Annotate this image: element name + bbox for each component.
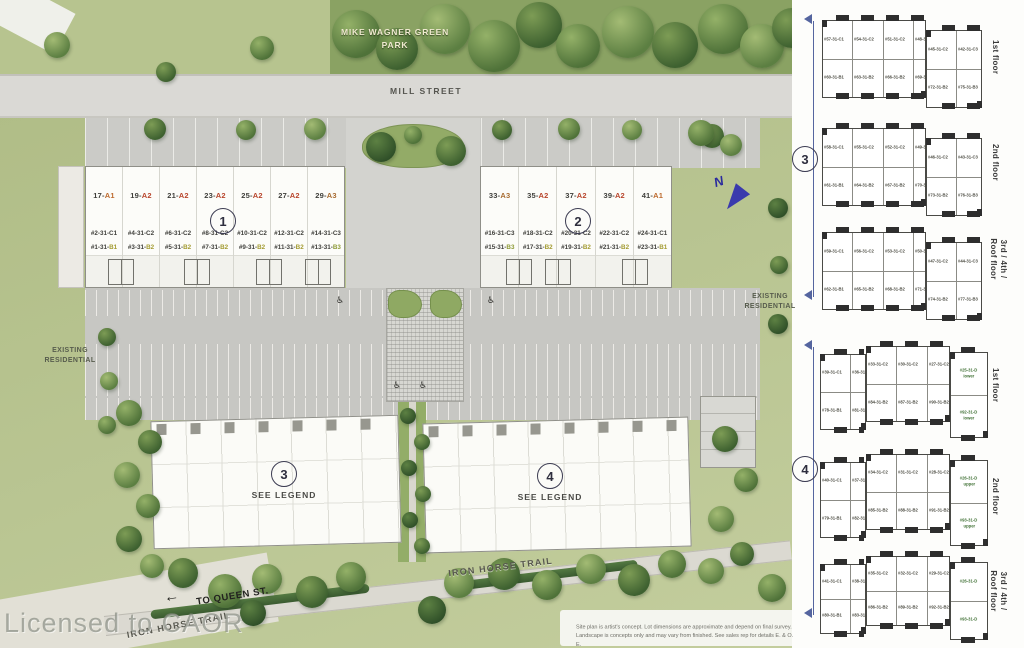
floorplan-unit: #39-31-C1 [821, 355, 850, 392]
group3-arrow-bottom-icon [799, 290, 812, 300]
floorplan-unit: #26-31-D [951, 563, 987, 601]
tree [366, 132, 396, 162]
tree [116, 400, 142, 426]
floorplan-unit: #56-31-C2 [852, 233, 882, 271]
unit-street-number: 39-A2 [596, 191, 633, 200]
unit-codes: #10-31-C2 #9-31-B2 [234, 227, 270, 255]
floorplan-unit-label: #30-31-C2 [898, 363, 918, 367]
unit-street-number: 33-A3 [481, 191, 518, 200]
tree [100, 372, 118, 390]
building3-number-badge: 3 [271, 461, 297, 487]
garage [506, 259, 532, 285]
stair-tabs [868, 449, 948, 455]
floorplan-unit: #93-31-D [951, 602, 987, 640]
tree [532, 570, 562, 600]
unit-code-lower: #21-31-B2 [596, 241, 633, 255]
floorplan-unit-label: #74-31-B2 [928, 298, 948, 302]
floorplan-unit-label: #85-31-B2 [868, 509, 888, 513]
licensed-watermark: Licensed to CAOR [4, 608, 244, 639]
floorplan-unit-label: #53-31-C2 [885, 250, 905, 254]
floorplan-unit-label: #77-31-B3 [958, 298, 978, 302]
unit-street-number: 17-A1 [86, 191, 122, 200]
floorplan-unit-label: #54-31-C2 [854, 38, 874, 42]
floorplan-unit: #52-31-C2 [883, 129, 913, 167]
floorplan-unit-label: #34-31-C2 [868, 471, 888, 475]
stair-tabs [930, 25, 980, 31]
unit-codes: #6-31-C2 #5-31-B2 [160, 227, 196, 255]
floorplan-unit-label: #31-31-C2 [898, 471, 918, 475]
unit-codes: #4-31-C2 #3-31-B2 [123, 227, 159, 255]
floorplan-unit-label: #88-31-B2 [898, 509, 918, 513]
mill-street-road [0, 74, 792, 118]
floorplan-unit-label: #42-31-C3 [958, 48, 978, 52]
floorplan-unit: #42-31-C3 [956, 31, 986, 69]
floorplan-unit-label: #93-31-D [960, 618, 978, 622]
stair-tabs [930, 133, 980, 139]
floorplan-unit-label: #75-31-B3 [958, 86, 978, 90]
unit-code-upper: #4-31-C2 [123, 227, 159, 241]
tree [136, 494, 160, 518]
tree [138, 430, 162, 454]
stair-tabs [824, 305, 924, 311]
floorplan-bldg4-floor3: #41-31-C1#38-31-C2 #80-31-B1#83-31-B2 #3… [820, 550, 990, 648]
floorplan-unit-label: #58-31-C1 [824, 146, 844, 150]
tree [44, 32, 70, 58]
group4-floor2-label: 2nd floor [991, 478, 1000, 515]
floorplan-unit-sublabel: lower [964, 375, 975, 379]
floorplan-unit: #46-31-C2 [927, 139, 956, 177]
tree [296, 576, 328, 608]
floorplan-unit: #33-31-C2 [867, 347, 896, 384]
tree [400, 408, 416, 424]
floorplan-unit: #59-31-C1 [823, 233, 852, 271]
floorplan-bldg3-floor2: #58-31-C1#55-31-C2#52-31-C2#49-31-C2 #61… [822, 122, 992, 226]
floorplan-unit: #47-31-C2 [927, 243, 956, 281]
floorplan-unit: #60-31-B1 [823, 60, 852, 98]
floorplan-unit-label: #84-31-B2 [868, 401, 888, 405]
unit-code-lower: #5-31-B2 [160, 241, 196, 255]
tree [622, 120, 642, 140]
wheelchair-icon: ♿ [419, 381, 427, 391]
floorplan-unit-label: #45-31-C2 [928, 48, 948, 52]
tree [768, 198, 788, 218]
floorplan-unit-label: #55-31-C2 [854, 146, 874, 150]
floorplan-unit: #77-31-B3 [956, 282, 986, 320]
planting-bed [430, 290, 462, 318]
floorplan-unit: #84-31-B2 [867, 385, 896, 422]
floorplan-unit-label: #44-31-C3 [958, 260, 978, 264]
stair-tab [961, 557, 975, 563]
courtyard-path [409, 402, 416, 562]
floorplan-unit-label: #26-31-D [960, 580, 978, 584]
floorplan-unit-label: #39-31-C1 [822, 371, 842, 375]
tree [436, 136, 466, 166]
wheelchair-icon: ♿ [393, 381, 401, 391]
unit-street-number: 35-A2 [519, 191, 556, 200]
unit-codes: #12-31-C2 #11-31-B2 [271, 227, 307, 255]
tree [114, 462, 140, 488]
site-plan-illustration: 17-A1 #2-31-C1 #1-31-B1 19-A2 #4-31-C2 #… [0, 0, 792, 648]
tree [602, 6, 654, 58]
unit-codes: #16-31-C3 #15-31-B3 [481, 227, 518, 255]
floorplan-unit-label: #52-31-C2 [885, 146, 905, 150]
tree [144, 118, 166, 140]
group4-arrow-top-icon [799, 340, 812, 350]
group4-arrow-bottom-icon [799, 608, 812, 618]
floorplan-unit-label: #43-31-C3 [958, 156, 978, 160]
floorplan-unit-label: #33-31-C2 [868, 363, 888, 367]
building3-garage-tabs [156, 418, 392, 435]
garage [545, 259, 571, 285]
unit-code-upper: #10-31-C2 [234, 227, 270, 241]
building3-see-legend-label: SEE LEGEND [246, 490, 322, 500]
floorplan-unit-label: #47-31-C2 [928, 260, 948, 264]
floorplan-unit-label: #41-31-C1 [822, 580, 842, 584]
building4-see-legend-label: SEE LEGEND [512, 492, 588, 502]
group3-floor2-label: 2nd floor [991, 144, 1000, 181]
floorplan-unit-label: #35-31-C2 [868, 572, 888, 576]
unit-street-number: 25-A2 [234, 191, 270, 200]
building1-number-badge: 1 [210, 208, 236, 234]
unit-codes: #22-31-C2 #21-31-B2 [596, 227, 633, 255]
stair-tabs [822, 457, 864, 463]
garage [108, 259, 134, 285]
unit-codes: #14-31-C3 #13-31-B3 [308, 227, 344, 255]
tree [556, 24, 600, 68]
unit-code-upper: #2-31-C1 [86, 227, 122, 241]
floorplan-unit: #53-31-C2 [883, 233, 913, 271]
floorplan-unit-label: #93-31-D [960, 519, 978, 523]
stair-tab [961, 543, 975, 549]
floorplan-unit: #34-31-C2 [867, 455, 896, 492]
stair-tabs [930, 103, 980, 109]
floorplan-unit: #79-31-B1 [821, 501, 850, 538]
stair-tabs [868, 551, 948, 557]
tree [418, 596, 446, 624]
stair-tabs [930, 211, 980, 217]
tree [618, 564, 650, 596]
unit-code-upper: #18-31-C2 [519, 227, 556, 241]
tree [758, 574, 786, 602]
existing-residential-right-label: EXISTINGRESIDENTIAL [738, 292, 802, 312]
stair-tab [961, 435, 975, 441]
stair-tabs [824, 15, 924, 21]
floorplan-unit-label: #89-31-B2 [898, 606, 918, 610]
floorplan-bldg3-floor1: #57-31-C1#54-31-C2#51-31-C2#48-31-C2 #60… [822, 14, 992, 118]
floorplan-unit-sublabel: upper [963, 525, 975, 529]
stair-tab [961, 347, 975, 353]
floorplan-bldg4-floor1: #39-31-C1#36-31-C2 #78-31-B1#81-31-B2 #3… [820, 340, 990, 444]
building2-number-badge: 2 [565, 208, 591, 234]
unit-street-number: 29-A3 [308, 191, 344, 200]
building4-number-badge: 4 [537, 463, 563, 489]
stair-tabs [822, 427, 864, 433]
floorplan-unit: #54-31-C2 [852, 21, 882, 59]
tree [516, 2, 562, 48]
floorplan-unit-label: #56-31-C2 [854, 250, 874, 254]
floorplan-unit: #41-31-C1 [821, 565, 850, 599]
stair-tabs [824, 201, 924, 207]
floorplan-unit-label: #46-31-C2 [928, 156, 948, 160]
floorplan-unit-label: #78-31-B1 [822, 409, 842, 413]
floorplan-unit: #45-31-C2 [927, 31, 956, 69]
stair-tabs [930, 237, 980, 243]
floorplan-unit-label: #87-31-B2 [898, 401, 918, 405]
disclaimer-text: Site plan is artist's concept. Lot dimen… [576, 624, 797, 648]
floorplan-unit: #86-31-B2 [867, 592, 896, 626]
floorplan-unit: #72-31-B2 [927, 70, 956, 108]
floorplan-unit-label: #25-31-D [960, 369, 978, 373]
tree [652, 22, 698, 68]
tree [414, 538, 430, 554]
unit-codes: #2-31-C1 #1-31-B1 [86, 227, 122, 255]
floorplan-unit: #31-31-C2 [896, 455, 926, 492]
tree [98, 416, 116, 434]
existing-residential-left-label: EXISTINGRESIDENTIAL [34, 346, 106, 366]
tree [712, 426, 738, 452]
floorplan-unit-label: #92-31-B2 [929, 606, 949, 610]
floorplan-unit: #78-31-B1 [821, 393, 850, 430]
floorplan-unit: #30-31-C2 [896, 347, 926, 384]
legend-group3-badge: 3 [792, 146, 818, 172]
unit-code-upper: #16-31-C3 [481, 227, 518, 241]
tree [492, 120, 512, 140]
unit-code-lower: #3-31-B2 [123, 241, 159, 255]
unit-code-lower: #13-31-B3 [308, 241, 344, 255]
group3-arrow-top-icon [799, 14, 812, 24]
unit-code-lower: #15-31-B3 [481, 241, 518, 255]
tree [116, 526, 142, 552]
tree [401, 460, 417, 476]
floorplan-bldg3-floor3: #59-31-C1#56-31-C2#53-31-C2#50-31-C2 #62… [822, 226, 992, 330]
stair-tab [961, 455, 975, 461]
floorplan-unit-label: #64-31-B2 [854, 184, 874, 188]
tree [558, 118, 580, 140]
floorplan-unit: #61-31-B1 [823, 168, 852, 206]
existing-building-strip [58, 166, 84, 288]
wheelchair-icon: ♿ [336, 296, 344, 306]
floorplan-unit: #43-31-C3 [956, 139, 986, 177]
floorplan-unit-label: #90-31-B2 [929, 401, 949, 405]
legend-group4-badge: 4 [792, 456, 818, 482]
floorplan-unit: #76-31-B3 [956, 178, 986, 216]
floorplan-unit: #73-31-B2 [927, 178, 956, 216]
tree [414, 434, 430, 450]
unit-street-number: 23-A2 [197, 191, 233, 200]
unit-code-lower: #7-31-B2 [197, 241, 233, 255]
planting-bed [388, 290, 422, 318]
stair-tabs [824, 93, 924, 99]
stair-tabs [868, 527, 948, 533]
floorplan-unit-label: #59-31-C1 [824, 250, 844, 254]
floorplan-unit-label: #51-31-C2 [885, 38, 905, 42]
floorplan-unit-label: #73-31-B2 [928, 194, 948, 198]
floorplan-unit: #80-31-B1 [821, 600, 850, 634]
floorplan-unit: #40-31-C1 [821, 463, 850, 500]
tree [468, 20, 520, 72]
floorplan-unit: #65-31-B2 [852, 272, 882, 310]
floorplan-unit-label: #65-31-B2 [854, 288, 874, 292]
tree [768, 314, 788, 334]
garage [305, 259, 331, 285]
stair-tabs [824, 227, 924, 233]
unit-code-lower: #19-31-B2 [557, 241, 594, 255]
unit-code-lower: #1-31-B1 [86, 241, 122, 255]
group4-floor1-label: 1st floor [991, 368, 1000, 402]
floorplan-unit-label: #62-31-B1 [824, 288, 844, 292]
floorplan-unit: #64-31-B2 [852, 168, 882, 206]
stair-tabs [822, 631, 864, 637]
floorplan-unit-label: #72-31-B2 [928, 86, 948, 90]
tree [304, 118, 326, 140]
floorplan-unit-sublabel: upper [963, 483, 975, 487]
floorplan-unit-label: #40-31-C1 [822, 479, 842, 483]
stair-tabs [930, 315, 980, 321]
floorplan-unit: #75-31-B3 [956, 70, 986, 108]
floorplan-unit-label: #28-31-C2 [929, 471, 949, 475]
unit-street-number: 41-A1 [634, 191, 671, 200]
unit-code-upper: #22-31-C2 [596, 227, 633, 241]
floorplan-bldg4-floor2: #40-31-C1#37-31-C2 #79-31-B1#82-31-B2 #3… [820, 448, 990, 552]
floorplan-unit: #51-31-C2 [883, 21, 913, 59]
floorplan-unit-label: #60-31-B1 [824, 76, 844, 80]
tree [98, 328, 116, 346]
group4-bracket-line [813, 347, 814, 615]
stair-tabs [868, 623, 948, 629]
mill-street-label: MILL STREET [378, 86, 474, 96]
tree [168, 558, 198, 588]
floorplan-unit: #92-31-Dlower [951, 396, 987, 438]
tree [576, 554, 606, 584]
floorplan-unit-label: #79-31-B1 [822, 517, 842, 521]
garage [622, 259, 648, 285]
tree [236, 120, 256, 140]
building4-garage-tabs [428, 420, 682, 438]
floorplan-unit: #63-31-B2 [852, 60, 882, 98]
floorplan-unit-label: #80-31-B1 [822, 614, 842, 618]
floorplan-unit: #55-31-C2 [852, 129, 882, 167]
queen-street-arrow-icon: ← [163, 587, 180, 606]
floorplan-unit: #93-31-Dupper [951, 504, 987, 546]
tree [415, 486, 431, 502]
stair-tabs [822, 559, 864, 565]
tree [402, 512, 418, 528]
unit-street-number: 37-A2 [557, 191, 594, 200]
floorplan-unit-label: #29-31-C2 [929, 572, 949, 576]
floorplan-unit-label: #76-31-B3 [958, 194, 978, 198]
unit-codes: #24-31-C1 #23-31-B1 [634, 227, 671, 255]
tree [698, 558, 724, 584]
tree [336, 562, 366, 592]
floorplan-unit: #88-31-B2 [896, 493, 926, 530]
floorplan-unit-label: #27-31-C2 [929, 363, 949, 367]
stair-tabs [868, 419, 948, 425]
floorplan-unit-label: #61-31-B1 [824, 184, 844, 188]
unit-code-upper: #6-31-C2 [160, 227, 196, 241]
floorplan-unit-sublabel: lower [964, 417, 975, 421]
site-plan-canvas: 17-A1 #2-31-C1 #1-31-B1 19-A2 #4-31-C2 #… [0, 0, 1024, 648]
unit-street-number: 19-A2 [123, 191, 159, 200]
floorplan-unit: #89-31-B2 [896, 592, 926, 626]
floorplan-unit-label: #86-31-B2 [868, 606, 888, 610]
floorplan-unit: #68-31-B2 [883, 272, 913, 310]
park-label: MIKE WAGNER GREENPARK [320, 26, 470, 52]
group3-floor1-label: 1st floor [991, 40, 1000, 74]
stair-tabs [822, 535, 864, 541]
tree [250, 36, 274, 60]
floorplan-unit-label: #92-31-D [960, 411, 978, 415]
unit-street-number: 27-A2 [271, 191, 307, 200]
unit-code-lower: #23-31-B1 [634, 241, 671, 255]
stair-tabs [822, 349, 864, 355]
floorplan-unit-label: #32-31-C2 [898, 572, 918, 576]
floorplan-unit: #74-31-B2 [927, 282, 956, 320]
tree [708, 506, 734, 532]
unit-code-lower: #17-31-B2 [519, 241, 556, 255]
stair-tabs [868, 341, 948, 347]
group4-floor3-label: 3rd / 4th / Roof floor [987, 562, 1008, 620]
tree [770, 256, 788, 274]
floorplan-unit-label: #91-31-B2 [929, 509, 949, 513]
garage [184, 259, 210, 285]
garage [256, 259, 282, 285]
stair-tabs [824, 123, 924, 129]
floorplan-unit: #62-31-B1 [823, 272, 852, 310]
stair-tab [961, 637, 975, 643]
tree [720, 134, 742, 156]
tree [734, 468, 758, 492]
unit-code-upper: #12-31-C2 [271, 227, 307, 241]
floorplan-unit: #67-31-B2 [883, 168, 913, 206]
unit-code-upper: #24-31-C1 [634, 227, 671, 241]
group3-floor3-label: 3rd / 4th / Roof floor [987, 230, 1008, 288]
unit-code-upper: #14-31-C3 [308, 227, 344, 241]
tree [658, 550, 686, 578]
tree [404, 126, 422, 144]
floorplan-unit-label: #67-31-B2 [885, 184, 905, 188]
unit-street-number: 21-A2 [160, 191, 196, 200]
floorplan-unit: #57-31-C1 [823, 21, 852, 59]
floorplan-unit-label: #66-31-B2 [885, 76, 905, 80]
floorplan-unit: #44-31-C3 [956, 243, 986, 281]
floorplan-unit-label: #26-31-D [960, 477, 978, 481]
floorplan-unit: #87-31-B2 [896, 385, 926, 422]
floorplan-unit-label: #68-31-B2 [885, 288, 905, 292]
tree [730, 542, 754, 566]
floorplan-unit: #35-31-C2 [867, 557, 896, 591]
floorplan-unit: #32-31-C2 [896, 557, 926, 591]
tree [240, 600, 266, 626]
floorplan-unit: #66-31-B2 [883, 60, 913, 98]
unit-codes: #18-31-C2 #17-31-B2 [519, 227, 556, 255]
unit-code-lower: #9-31-B2 [234, 241, 270, 255]
floorplan-unit-label: #63-31-B2 [854, 76, 874, 80]
floorplan-unit: #26-31-Dupper [951, 461, 987, 503]
tree [156, 62, 176, 82]
wheelchair-icon: ♿ [487, 296, 495, 306]
floorplan-unit: #25-31-Dlower [951, 353, 987, 395]
tree [688, 120, 714, 146]
floorplan-unit-label: #57-31-C1 [824, 38, 844, 42]
floorplan-unit: #58-31-C1 [823, 129, 852, 167]
unit-code-lower: #11-31-B2 [271, 241, 307, 255]
floorplan-unit: #85-31-B2 [867, 493, 896, 530]
tree [140, 554, 164, 578]
